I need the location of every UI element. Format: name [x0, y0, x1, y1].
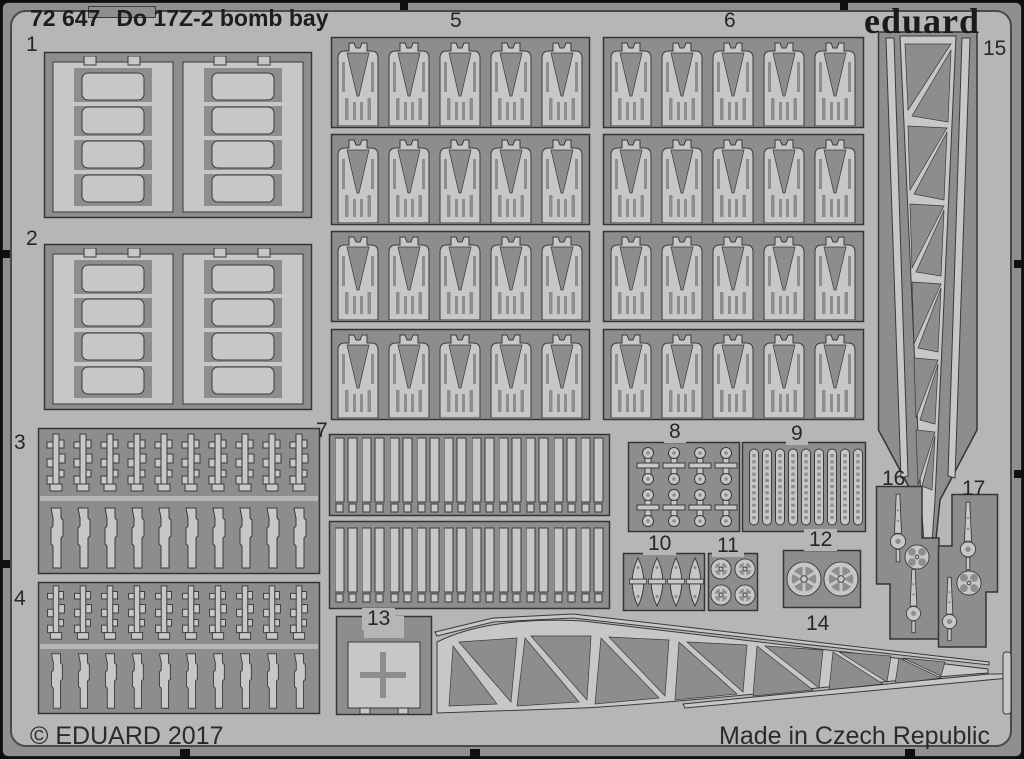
part-14-label: 14 [806, 613, 829, 635]
part-6-row-2 [603, 134, 864, 225]
part-6-row-4 [603, 329, 864, 420]
part-17-label: 17 [962, 478, 985, 500]
part-12-label: 12 [804, 529, 837, 551]
part-6-label: 6 [724, 10, 736, 32]
part-6-row-1 [603, 37, 864, 128]
part-4-artwork [38, 582, 320, 714]
frame-gap [1014, 470, 1022, 478]
part-16-label: 16 [882, 468, 905, 490]
part-13-artwork [336, 616, 432, 715]
part-5-row-1 [331, 37, 590, 128]
frame-gap [1014, 260, 1022, 268]
part-5-row-3 [331, 231, 590, 322]
part-4-label: 4 [14, 588, 26, 610]
part-1-label: 1 [26, 34, 38, 56]
photo-etch-fret-photo: 72 647Do 17Z-2 bomb bay eduard © EDUARD … [0, 0, 1024, 759]
part-10-artwork [623, 553, 705, 611]
frame-gap [400, 2, 408, 10]
part-8-label: 8 [664, 421, 686, 443]
part-3-artwork [38, 428, 320, 574]
frame-gap [2, 250, 10, 258]
brand-logo: eduard [864, 0, 980, 42]
made-in-text: Made in Czech Republic [719, 722, 990, 751]
part-15-label: 15 [983, 38, 1006, 60]
catalog-number: 72 647 [30, 5, 100, 31]
part-2-label: 2 [26, 228, 38, 250]
frame-gap [470, 749, 480, 757]
product-name: Do 17Z-2 bomb bay [116, 5, 328, 31]
part-9-label: 9 [786, 423, 808, 445]
part-7-row-1 [329, 434, 610, 516]
part-10-label: 10 [643, 533, 676, 555]
frame-gap [840, 2, 848, 10]
copyright-text: © EDUARD 2017 [30, 722, 224, 751]
part-7-row-2 [329, 521, 610, 609]
frame-gap [2, 560, 10, 568]
product-title: 72 647Do 17Z-2 bomb bay [30, 5, 329, 32]
part-16-artwork [876, 486, 940, 640]
part-17-artwork [938, 494, 998, 650]
part-3-label: 3 [14, 432, 26, 454]
part-11-artwork [708, 553, 758, 611]
part-5-row-2 [331, 134, 590, 225]
part-11-label: 11 [712, 535, 744, 557]
part-6-row-3 [603, 231, 864, 322]
part-5-row-4 [331, 329, 590, 420]
part-2-artwork [44, 244, 312, 410]
part-13-label: 13 [362, 608, 395, 630]
part-1-artwork [44, 52, 312, 218]
part-12-artwork [783, 550, 861, 608]
part-8-artwork [628, 442, 740, 532]
part-9-artwork [742, 442, 866, 532]
part-5-label: 5 [450, 10, 462, 32]
part-7-label: 7 [316, 420, 328, 442]
